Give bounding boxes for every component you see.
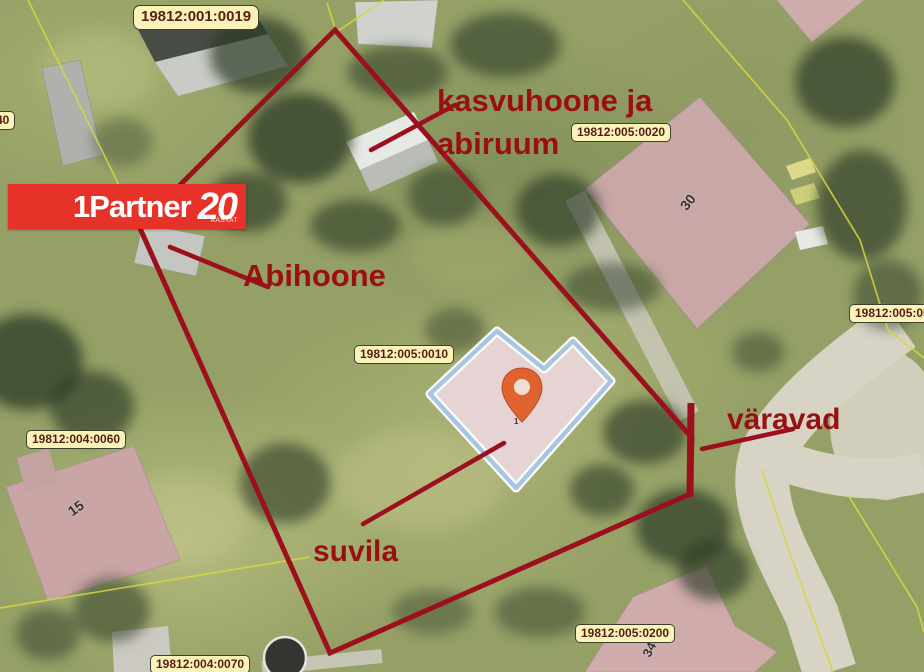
logo-years-badge: 20 AASTAT	[198, 188, 236, 226]
logo-subtext: AASTAT	[211, 217, 238, 224]
partner-logo: 1Partner 20 AASTAT	[8, 184, 246, 229]
cadastral-label-004-0060: 19812:004:0060	[26, 430, 126, 449]
annotation-varavad: väravad	[727, 399, 840, 440]
building-abihoone-shed	[134, 224, 205, 276]
location-pin-icon[interactable]	[500, 366, 544, 429]
annotation-suvila: suvila	[313, 531, 398, 572]
cadastral-label-005-0020: 19812:005:0020	[571, 123, 671, 142]
building-top-right	[777, 0, 864, 42]
annotation-abihoone: Abihoone	[243, 255, 386, 298]
logo-brand-text: 1Partner	[73, 189, 191, 225]
annotation-kasvuhoone-line1: kasvuhoone ja	[437, 80, 652, 123]
vehicle-khaki	[790, 183, 820, 205]
cadastral-label-001-0019: 19812:001:0019	[133, 5, 259, 30]
cadastral-label-005-0010: 19812:005:0010	[354, 345, 454, 364]
greenhouse-top-center	[355, 0, 438, 48]
cadastral-label-005-0200: 19812:005:0200	[575, 624, 675, 643]
pond-circle	[264, 637, 306, 672]
cadastral-label-005-05: 19812:005:05	[849, 304, 924, 323]
road-branch	[766, 455, 924, 479]
boundary-gates-tick	[690, 403, 691, 497]
aerial-map: 19812:001:0019 19812:005:0020 19812:005:…	[0, 0, 924, 672]
cadastral-label-004-0070: 19812:004:0070	[150, 655, 250, 672]
cadastral-label-40: 40	[0, 111, 15, 130]
